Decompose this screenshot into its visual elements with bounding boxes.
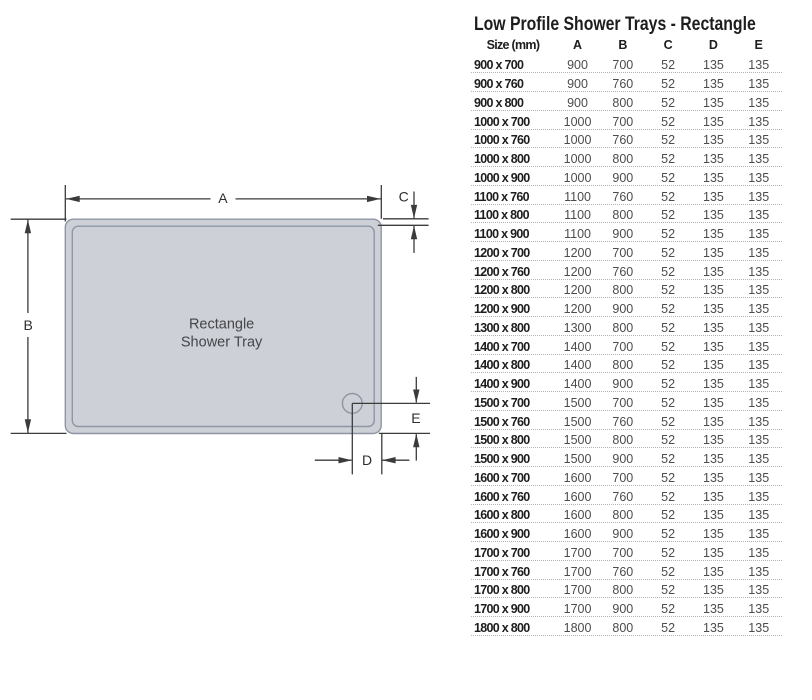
svg-text:E: E: [411, 410, 420, 426]
svg-text:D: D: [362, 452, 372, 468]
svg-text:C: C: [399, 189, 409, 205]
svg-text:Rectangle: Rectangle: [189, 316, 254, 332]
svg-text:A: A: [218, 190, 228, 206]
svg-text:Shower Tray: Shower Tray: [181, 334, 263, 350]
svg-text:B: B: [24, 317, 33, 333]
